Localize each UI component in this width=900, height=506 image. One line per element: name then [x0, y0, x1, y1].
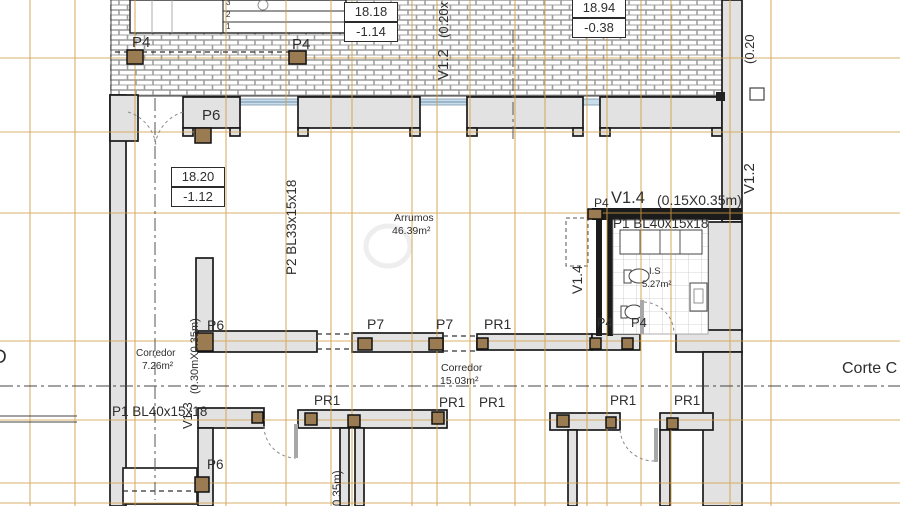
- column-mark-pr1: PR1: [484, 317, 511, 332]
- room-area: 15.03m²: [440, 376, 479, 387]
- stair-step-number: 2: [226, 11, 230, 19]
- level-elevation: 18.94: [572, 0, 626, 18]
- level-box-1: 18.18 -1.14: [344, 2, 398, 42]
- room-area: 7.26m²: [142, 362, 173, 373]
- level-offset: -1.14: [344, 22, 398, 42]
- level-box-2: 18.94 -0.38: [572, 0, 626, 38]
- stair-step-number: 3: [226, 0, 230, 7]
- level-offset: -0.38: [572, 18, 626, 38]
- column-mark-pr1: PR1: [439, 396, 465, 410]
- column-mark-p7: P7: [367, 317, 384, 332]
- stair-step-number: 1: [226, 23, 230, 31]
- window-dim-v14: (0.15X0.35m): [657, 193, 742, 208]
- column-mark-pr1: PR1: [610, 394, 636, 408]
- column-mark-p4: P4: [132, 35, 150, 51]
- section-mark-right: Corte C: [842, 361, 897, 378]
- room-area: 5.27m²: [642, 280, 672, 290]
- window-dim-v13: (0.30mX0.35m): [190, 318, 202, 394]
- room-area: 46.39m²: [392, 226, 431, 237]
- column-mark-p7: P7: [436, 317, 453, 332]
- annotation-layer: 18.18 -1.14 18.94 -0.38 18.20 -1.12 3 2 …: [0, 0, 900, 506]
- beam-label-p2: P2 BL33x15x18: [285, 180, 299, 275]
- level-offset: -1.12: [171, 187, 225, 207]
- level-elevation: 18.20: [171, 167, 225, 187]
- level-box-3: 18.20 -1.12: [171, 167, 225, 207]
- room-name: I.S: [649, 267, 661, 277]
- window-label-v12: V1.2: [742, 163, 758, 194]
- window-label-v14: V1.4: [611, 190, 645, 207]
- window-dim-v12: (0.20x: [437, 2, 451, 38]
- column-mark-p4: P4: [292, 37, 310, 53]
- column-mark-pr1: PR1: [479, 396, 505, 410]
- beam-label-p1: P1 BL40x15x18: [613, 217, 708, 231]
- room-name: Corredor: [441, 363, 482, 374]
- column-mark-p6: P6: [207, 318, 224, 333]
- room-name: Arrumos: [394, 213, 434, 224]
- window-dim-v12: (0.20: [743, 34, 757, 64]
- column-mark-pr1: PR1: [314, 394, 340, 408]
- column-mark-p4: P4: [631, 316, 647, 330]
- room-name: Corredor: [136, 349, 175, 360]
- level-elevation: 18.18: [344, 2, 398, 22]
- section-mark-left: D: [0, 348, 7, 368]
- window-label-v14: V1.4: [570, 265, 585, 294]
- window-label-v12: V1.2: [436, 49, 452, 80]
- floor-plan-canvas: 18.18 -1.14 18.94 -0.38 18.20 -1.12 3 2 …: [0, 0, 900, 506]
- window-label-v13: V1.3: [181, 402, 195, 429]
- column-mark-p4: P4: [594, 197, 609, 210]
- column-mark-pr1: PR1: [674, 394, 700, 408]
- window-dim-bottom: (0.35m): [332, 470, 344, 506]
- column-mark-p6: P6: [202, 108, 220, 124]
- column-mark-p4: P4: [597, 317, 612, 330]
- column-mark-p6: P6: [207, 458, 224, 472]
